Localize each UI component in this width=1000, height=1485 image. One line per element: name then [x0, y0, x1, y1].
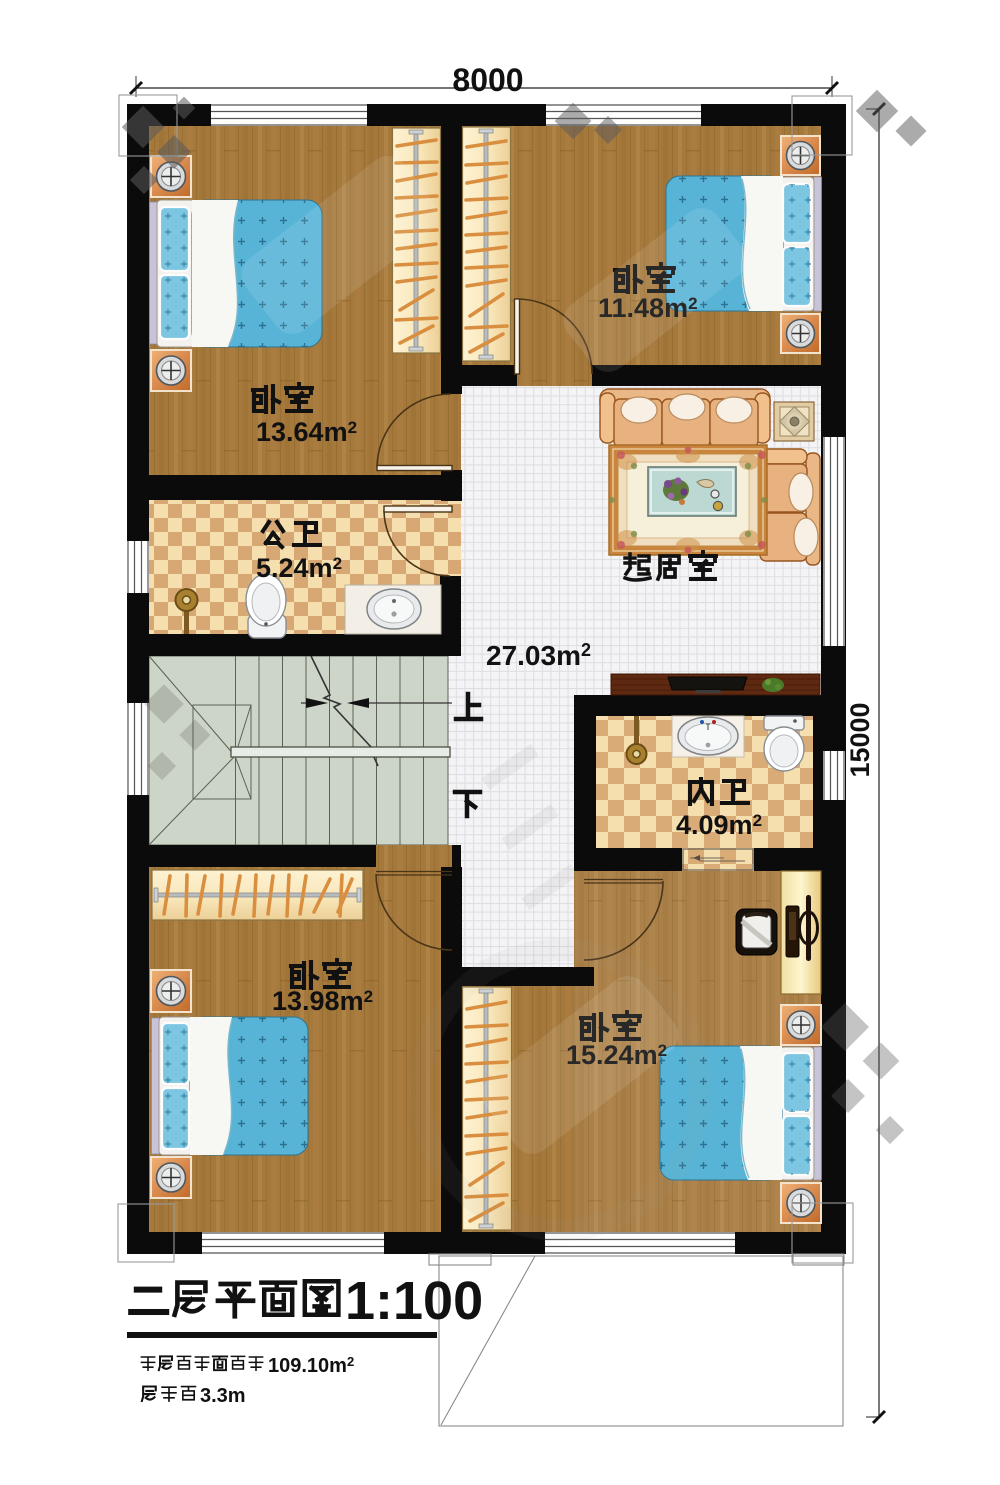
svg-text:3.3m: 3.3m	[200, 1385, 246, 1407]
svg-text:13.98m2: 13.98m2	[272, 986, 373, 1016]
svg-text:27.03m2: 27.03m2	[486, 640, 591, 671]
svg-text:5.24m2: 5.24m2	[256, 553, 342, 583]
svg-text:4.09m2: 4.09m2	[676, 810, 762, 840]
svg-text:13.64m2: 13.64m2	[256, 417, 357, 447]
svg-text:8000: 8000	[452, 62, 523, 98]
svg-text:109.10m2: 109.10m2	[268, 1354, 354, 1377]
svg-text:1:100: 1:100	[345, 1271, 483, 1331]
svg-text:15000: 15000	[845, 702, 875, 777]
